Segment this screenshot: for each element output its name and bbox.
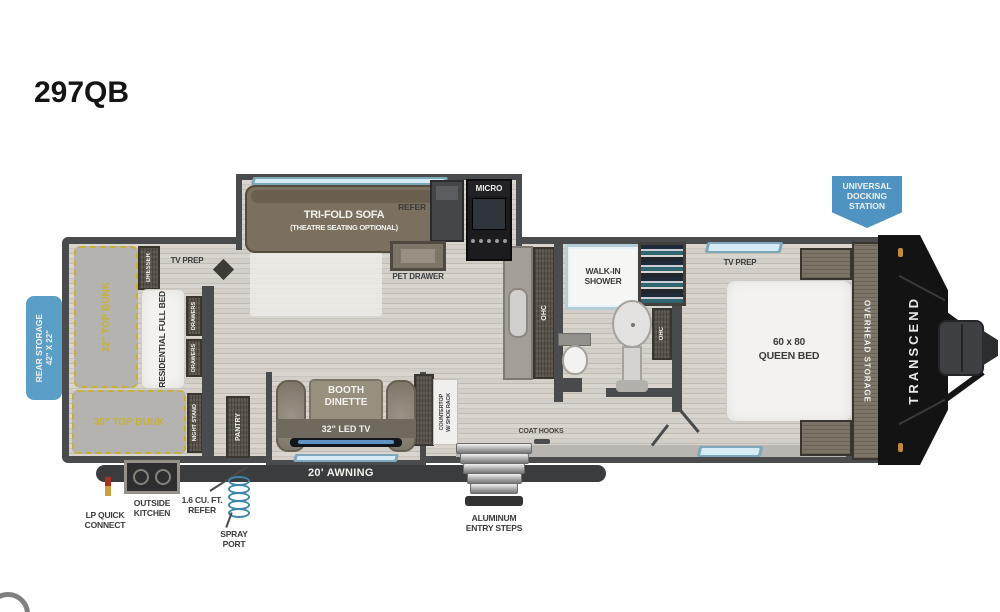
bath-sink-bowl	[612, 300, 652, 348]
outside-kitchen	[124, 460, 180, 494]
spray-port-label: SPRAY PORT	[202, 530, 266, 549]
top-bunk-32: 32" TOP BUNK	[74, 246, 138, 388]
pantry: PANTRY	[226, 396, 250, 458]
oven-window	[472, 198, 506, 230]
living-room-rug	[250, 252, 382, 316]
hitch-coupler	[982, 330, 998, 366]
wardrobe	[638, 242, 686, 306]
sofa-slideout-window	[251, 177, 448, 185]
shower-label2: SHOWER	[584, 277, 621, 287]
booth-dinette-label2: DINETTE	[296, 397, 396, 408]
awning-label: 20' AWNING	[308, 467, 374, 479]
brand-logo: TRANSCEND	[906, 296, 921, 405]
dresser-label: DRESSER	[146, 253, 152, 282]
coat-hooks	[534, 439, 550, 444]
bedroom-window-bottom	[697, 446, 764, 457]
pet-drawer	[390, 241, 446, 271]
led-tv	[290, 438, 402, 447]
micro-range-unit: MICRO	[466, 179, 512, 261]
bath-sink-pedestal	[622, 346, 642, 382]
overhead-storage: OVERHEAD STORAGE	[852, 242, 882, 460]
docking-label1: UNIVERSAL	[832, 181, 902, 191]
dinette-window	[293, 454, 399, 462]
micro-label: MICRO	[468, 181, 510, 196]
dresser: DRESSER	[138, 246, 160, 290]
sofa-sublabel: (THEATRE SEATING OPTIONAL)	[247, 223, 441, 232]
spray-line2: PORT	[202, 540, 266, 550]
drawers-lower: DRAWERS	[186, 339, 202, 377]
rear-storage-label2: 42" X 22"	[45, 330, 54, 365]
bedroom-cabinet-top	[800, 248, 852, 280]
lp-line2: CONNECT	[66, 521, 144, 531]
watermark-arc	[0, 592, 30, 612]
pet-drawer-label: PET DRAWER	[384, 273, 452, 282]
refrigerator	[430, 180, 464, 242]
rear-storage-badge: REAR STORAGE 42" X 22"	[26, 296, 62, 400]
countertop-line1: COUNTERTOP	[439, 394, 445, 430]
docking-label2: DOCKING	[832, 191, 902, 201]
residential-full-bed: RESIDENTIAL FULL BED	[141, 289, 185, 389]
range-burners	[468, 232, 510, 250]
lp-quick-connect-label: LP QUICK CONNECT	[66, 511, 144, 530]
kitchen-sink	[508, 288, 528, 338]
led-tv-label: 32" LED TV	[296, 424, 396, 434]
top-bunk-30: 30" TOP BUNK	[72, 390, 186, 454]
ohc-bath-label: OHC	[659, 327, 665, 340]
toilet-bowl	[562, 345, 588, 375]
bath-step-box	[558, 378, 582, 392]
docking-label3: STATION	[832, 201, 902, 211]
tv-prep-bedroom-label: TV PREP	[716, 259, 764, 268]
booth-dinette-label1: BOOTH	[296, 385, 396, 396]
propane-tanks	[938, 320, 984, 376]
ohc-kitchen-label: OHC	[541, 305, 548, 321]
docking-station-badge: UNIVERSAL DOCKING STATION	[832, 176, 902, 228]
drawers-upper-label: DRAWERS	[191, 302, 197, 330]
top-bunk-32-label: 32" TOP BUNK	[101, 282, 112, 353]
entry-steps	[456, 444, 532, 506]
queen-bed-label: QUEEN BED	[727, 351, 851, 363]
rear-storage-label1: REAR STORAGE	[34, 314, 44, 382]
refer-label: REFER	[392, 203, 432, 213]
countertop-line2: W/ SHOE RACK	[446, 393, 452, 432]
queen-bed-size: 60 x 80	[727, 337, 851, 348]
marker-light-top	[898, 248, 903, 257]
ohc-bath: OHC	[652, 308, 672, 360]
marker-light-bottom	[898, 443, 903, 452]
lp-quick-connect	[105, 477, 111, 496]
entry-steps-label: ALUMINUM ENTRY STEPS	[444, 514, 544, 533]
tv-prep-bunk-label: TV PREP	[164, 257, 210, 266]
night-stand: NIGHT STAND	[187, 393, 203, 453]
floorplan-canvas: 297QB TRI-FOLD SOFA (THEATRE SEATING OPT…	[0, 0, 1000, 612]
overhead-storage-label: OVERHEAD STORAGE	[863, 300, 872, 403]
full-bed-label: RESIDENTIAL FULL BED	[158, 291, 168, 388]
drawers-lower-label: DRAWERS	[191, 344, 197, 372]
bath-sink-foot	[616, 380, 648, 392]
pantry-label: PANTRY	[235, 413, 242, 441]
ohc-kitchen: OHC	[533, 247, 555, 379]
countertop-shoe-rack-label: COUNTERTOP W/ SHOE RACK	[433, 379, 458, 445]
bedroom-window-top	[705, 242, 784, 253]
top-bunk-30-label: 30" TOP BUNK	[94, 417, 165, 428]
model-title: 297QB	[34, 76, 129, 110]
bunk-room-wall	[202, 286, 214, 463]
entry-countertop	[414, 374, 434, 446]
drawers-upper: DRAWERS	[186, 296, 202, 336]
steps-line2: ENTRY STEPS	[444, 524, 544, 534]
queen-bed: 60 x 80 QUEEN BED	[726, 280, 852, 422]
night-stand-label: NIGHT STAND	[192, 404, 198, 441]
bedroom-cabinet-bottom	[800, 420, 852, 456]
coat-hooks-label: COAT HOOKS	[508, 428, 574, 436]
step-platform	[465, 496, 523, 506]
